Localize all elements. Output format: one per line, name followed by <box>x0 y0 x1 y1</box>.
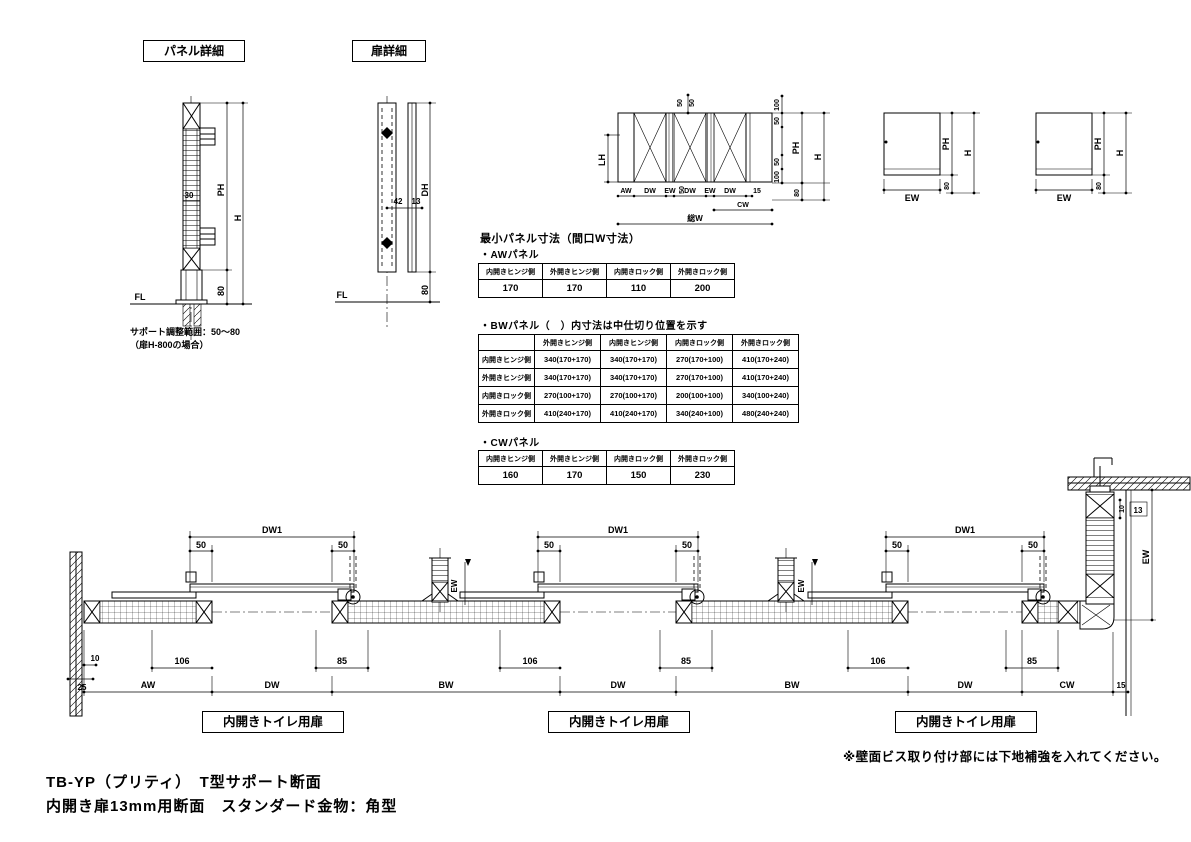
corner-dim-13: 13 <box>1134 506 1143 515</box>
bw-cell: 340(170+170) <box>601 351 667 369</box>
elev-dim-80: 80 <box>794 189 801 197</box>
dim-50: 50 <box>338 540 348 550</box>
dw1-label-3: DW1 <box>955 525 975 535</box>
section-dim-cw: CW <box>1060 680 1075 690</box>
dim-50: 50 <box>196 540 206 550</box>
tables-main-title: 最小パネル寸法（間口W寸法） <box>480 230 640 246</box>
aw-header-2: 内開きロック側 <box>607 264 671 280</box>
bw-corner-cell <box>479 335 535 351</box>
bw-col-header-1: 内開きヒンジ側 <box>601 335 667 351</box>
section-dw1-dims: DW1 50 50 DW1 50 50 DW1 50 <box>190 525 1044 582</box>
elev-dim-dw1: DW <box>644 188 656 195</box>
dim-85: 85 <box>337 656 347 666</box>
bw-cell: 270(100+170) <box>535 387 601 405</box>
drawing-title-line2: 内開き扉13mm用断面 スタンダード金物：角型 <box>46 795 397 816</box>
corner-dim-ew: EW <box>1141 549 1151 564</box>
bw-cell: 410(170+240) <box>733 351 799 369</box>
door-detail-drawing: 42 13 DH 80 FL <box>335 96 440 330</box>
bw-cell: 410(240+170) <box>601 405 667 423</box>
elev-dim-50-r2: 50 <box>774 158 781 166</box>
dim-50: 50 <box>1028 540 1038 550</box>
support-note-line2: （扉H-800の場合） <box>130 339 209 350</box>
support-note-line1: サポート調整範囲：50～80 <box>130 326 240 337</box>
bw-row-header-0: 内開きヒンジ側 <box>479 351 535 369</box>
toilet-door-label-3: 内開きトイレ用扉 <box>895 711 1037 733</box>
cw-value-1: 170 <box>543 467 607 485</box>
aw-value-3: 200 <box>671 280 735 298</box>
bw-table-title: ・BWパネル（ ）内寸法は中仕切り位置を示す <box>480 317 708 332</box>
drawing-title-line1: TB-YP（プリティ） T型サポート断面 <box>46 771 322 792</box>
bw-cell: 410(240+170) <box>535 405 601 423</box>
bw-cell: 410(170+240) <box>733 369 799 387</box>
endpanel2-dim-80: 80 <box>1096 182 1103 190</box>
dim-50: 50 <box>544 540 554 550</box>
aw-header-0: 内開きヒンジ側 <box>479 264 543 280</box>
cw-header-0: 内開きヒンジ側 <box>479 451 543 467</box>
endpanel2-dim-ew: EW <box>1057 193 1072 203</box>
door-fl-label: FL <box>337 290 348 300</box>
layout-elevation-drawing: LH 50 50 50 AW DW EW DW EW DW 15 CW 総W <box>597 95 830 224</box>
dim-50: 50 <box>682 540 692 550</box>
section-ew-marker-1: EW <box>450 579 459 592</box>
bw-row-header-2: 内開きロック側 <box>479 387 535 405</box>
elev-dim-50-top1: 50 <box>677 99 684 107</box>
panel-detail-drawing: 30 PH H 80 FL サポート調整範囲：50～80 （扉H-800の場合） <box>130 96 252 350</box>
bw-cell: 340(170+170) <box>535 369 601 387</box>
elev-dim-dw2: DW <box>684 188 696 195</box>
section-sub-dims: 106 85 106 85 106 85 10 25 <box>68 630 1058 692</box>
bw-cell: 200(100+100) <box>667 387 733 405</box>
panel-dim-30: 30 <box>185 191 194 200</box>
section-dim-dw: DW <box>611 680 626 690</box>
bw-cell: 480(240+240) <box>733 405 799 423</box>
bw-cell: 270(100+170) <box>601 387 667 405</box>
elev-dim-100-top: 100 <box>774 99 781 111</box>
dim-85: 85 <box>681 656 691 666</box>
dim-85: 85 <box>1027 656 1037 666</box>
elev-dim-dw3: DW <box>724 188 736 195</box>
elev-dim-50-r1: 50 <box>774 117 781 125</box>
bw-cell: 340(100+240) <box>733 387 799 405</box>
endpanel1-dim-ew: EW <box>905 193 920 203</box>
section-dim-aw: AW <box>141 680 156 690</box>
corner-dim-10: 10 <box>1119 505 1126 513</box>
elev-dim-h: H <box>813 154 823 161</box>
corner-dims: 10 13 EW <box>1114 490 1156 620</box>
end-panel-square-1: EW PH 80 H <box>884 113 980 203</box>
door-dim-80: 80 <box>420 285 430 295</box>
endpanel1-dim-h: H <box>963 150 973 157</box>
wall-screw-note: ※壁面ビス取り付け部には下地補強を入れてください。 <box>843 746 1167 765</box>
bw-cell: 340(170+170) <box>535 351 601 369</box>
bw-cell: 270(170+100) <box>667 351 733 369</box>
aw-value-1: 170 <box>543 280 607 298</box>
elev-dim-aw: AW <box>620 188 632 195</box>
endpanel1-dim-80: 80 <box>944 182 951 190</box>
section-main-dims: AW DW BW DW BW DW CW 15 <box>83 630 1130 696</box>
dim-106: 106 <box>522 656 537 666</box>
elev-dim-ew2: EW <box>704 188 716 195</box>
bw-cell: 270(170+100) <box>667 369 733 387</box>
bw-row-header-3: 外開きロック側 <box>479 405 535 423</box>
cw-value-3: 230 <box>671 467 735 485</box>
bw-row-header-1: 外開きヒンジ側 <box>479 369 535 387</box>
plan-section-drawing: EW EW DW1 50 50 DW1 50 50 <box>68 458 1190 716</box>
panel-fl-label: FL <box>135 292 146 302</box>
cw-header-1: 外開きヒンジ側 <box>543 451 607 467</box>
elev-dim-ew1: EW <box>664 188 676 195</box>
bw-col-header-3: 外開きロック側 <box>733 335 799 351</box>
bw-panel-table: 外開きヒンジ側 内開きヒンジ側 内開きロック側 外開きロック側 内開きヒンジ側 … <box>478 334 799 423</box>
toilet-door-label-1: 内開きトイレ用扉 <box>202 711 344 733</box>
bw-col-header-0: 外開きヒンジ側 <box>535 335 601 351</box>
section-ew-marker-2: EW <box>797 579 806 592</box>
aw-header-1: 外開きヒンジ側 <box>543 264 607 280</box>
aw-panel-table: 内開きヒンジ側 外開きヒンジ側 内開きロック側 外開きロック側 170 170 … <box>478 263 735 298</box>
elev-dim-15: 15 <box>753 188 761 195</box>
endpanel2-dim-ph: PH <box>1093 138 1103 151</box>
dw1-label-1: DW1 <box>262 525 282 535</box>
toilet-door-label-2: 内開きトイレ用扉 <box>548 711 690 733</box>
elev-dim-lh: LH <box>597 154 607 166</box>
bw-cell: 340(240+100) <box>667 405 733 423</box>
panel-dim-ph: PH <box>216 184 226 197</box>
aw-value-0: 170 <box>479 280 543 298</box>
door-dim-42: 42 <box>394 197 403 206</box>
door-dim-13: 13 <box>412 197 421 206</box>
cw-table-title: ・CWパネル <box>480 434 540 449</box>
end-panel-square-2: EW PH 80 H <box>1036 113 1132 203</box>
cw-header-2: 内開きロック側 <box>607 451 671 467</box>
elev-dim-50-top2: 50 <box>689 99 696 107</box>
dim-25: 25 <box>78 683 87 692</box>
cw-header-3: 外開きロック側 <box>671 451 735 467</box>
elev-dim-total-w: 総W <box>687 213 703 223</box>
dim-106: 106 <box>174 656 189 666</box>
panel-dim-h: H <box>233 215 243 222</box>
dim-106: 106 <box>870 656 885 666</box>
aw-table-title: ・AWパネル <box>480 246 539 261</box>
section-dim-dw: DW <box>265 680 280 690</box>
dim-50: 50 <box>892 540 902 550</box>
aw-header-3: 外開きロック側 <box>671 264 735 280</box>
cw-value-2: 150 <box>607 467 671 485</box>
aw-value-2: 110 <box>607 280 671 298</box>
section-dim-bw: BW <box>439 680 454 690</box>
cw-value-0: 160 <box>479 467 543 485</box>
section-dim-dw: DW <box>958 680 973 690</box>
cw-panel-table: 内開きヒンジ側 外開きヒンジ側 内開きロック側 外開きロック側 160 170 … <box>478 450 735 485</box>
elev-dim-cw: CW <box>737 202 749 209</box>
elev-dim-100-bottom: 100 <box>774 171 781 183</box>
door-dim-dh: DH <box>420 184 430 197</box>
endpanel2-dim-h: H <box>1115 150 1125 157</box>
bw-col-header-2: 内開きロック側 <box>667 335 733 351</box>
panel-dim-80: 80 <box>216 286 226 296</box>
dim-10: 10 <box>91 654 100 663</box>
dw1-label-2: DW1 <box>608 525 628 535</box>
section-dim-15: 15 <box>1117 681 1126 690</box>
drawing-page: パネル詳細 扉詳細 <box>0 0 1191 842</box>
bw-cell: 340(170+170) <box>601 369 667 387</box>
elev-dim-ph: PH <box>791 142 801 155</box>
section-dim-bw: BW <box>785 680 800 690</box>
endpanel1-dim-ph: PH <box>941 138 951 151</box>
